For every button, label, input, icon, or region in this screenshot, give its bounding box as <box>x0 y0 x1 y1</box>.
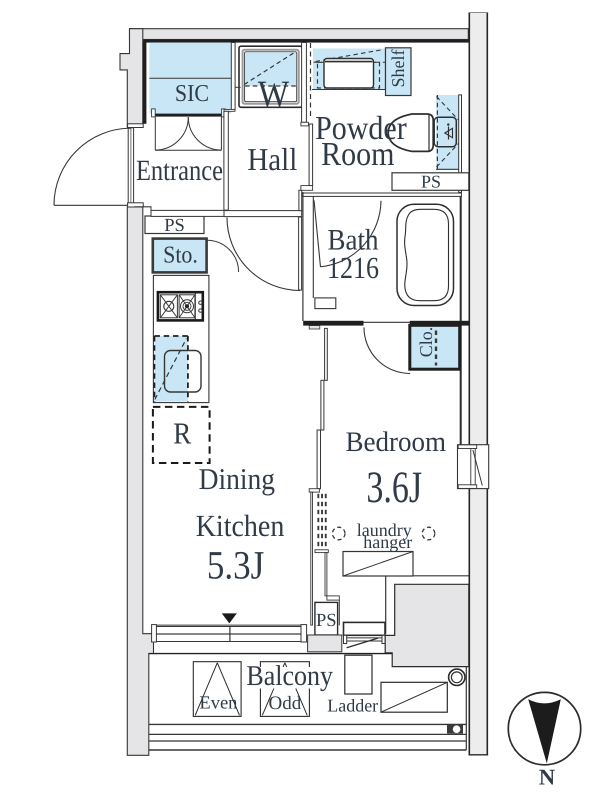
svg-text:Sto.: Sto. <box>163 241 198 269</box>
svg-text:PS: PS <box>316 611 337 631</box>
svg-text:Ladder: Ladder <box>327 696 378 716</box>
svg-text:Odd: Odd <box>269 693 302 714</box>
svg-text:Room: Room <box>321 136 394 173</box>
svg-text:SIC: SIC <box>175 79 209 107</box>
svg-text:Hall: Hall <box>247 143 297 178</box>
svg-text:1216: 1216 <box>327 251 379 285</box>
svg-text:5.3J: 5.3J <box>207 543 264 588</box>
svg-text:Dining: Dining <box>199 462 276 496</box>
svg-text:R: R <box>173 416 191 450</box>
svg-text:hanger: hanger <box>363 532 412 552</box>
svg-text:PS: PS <box>421 172 441 192</box>
svg-text:Kitchen: Kitchen <box>196 510 285 544</box>
svg-text:W: W <box>258 74 290 115</box>
svg-text:Balcony: Balcony <box>246 660 333 692</box>
svg-text:Shelf: Shelf <box>388 49 408 87</box>
svg-text:N: N <box>539 764 555 789</box>
svg-text:3.6J: 3.6J <box>366 464 422 513</box>
svg-text:Clo.: Clo. <box>416 327 436 358</box>
svg-text:Bedroom: Bedroom <box>346 426 447 458</box>
svg-text:Entrance: Entrance <box>136 155 223 187</box>
svg-text:PS: PS <box>164 216 185 236</box>
svg-text:Even: Even <box>199 693 237 713</box>
